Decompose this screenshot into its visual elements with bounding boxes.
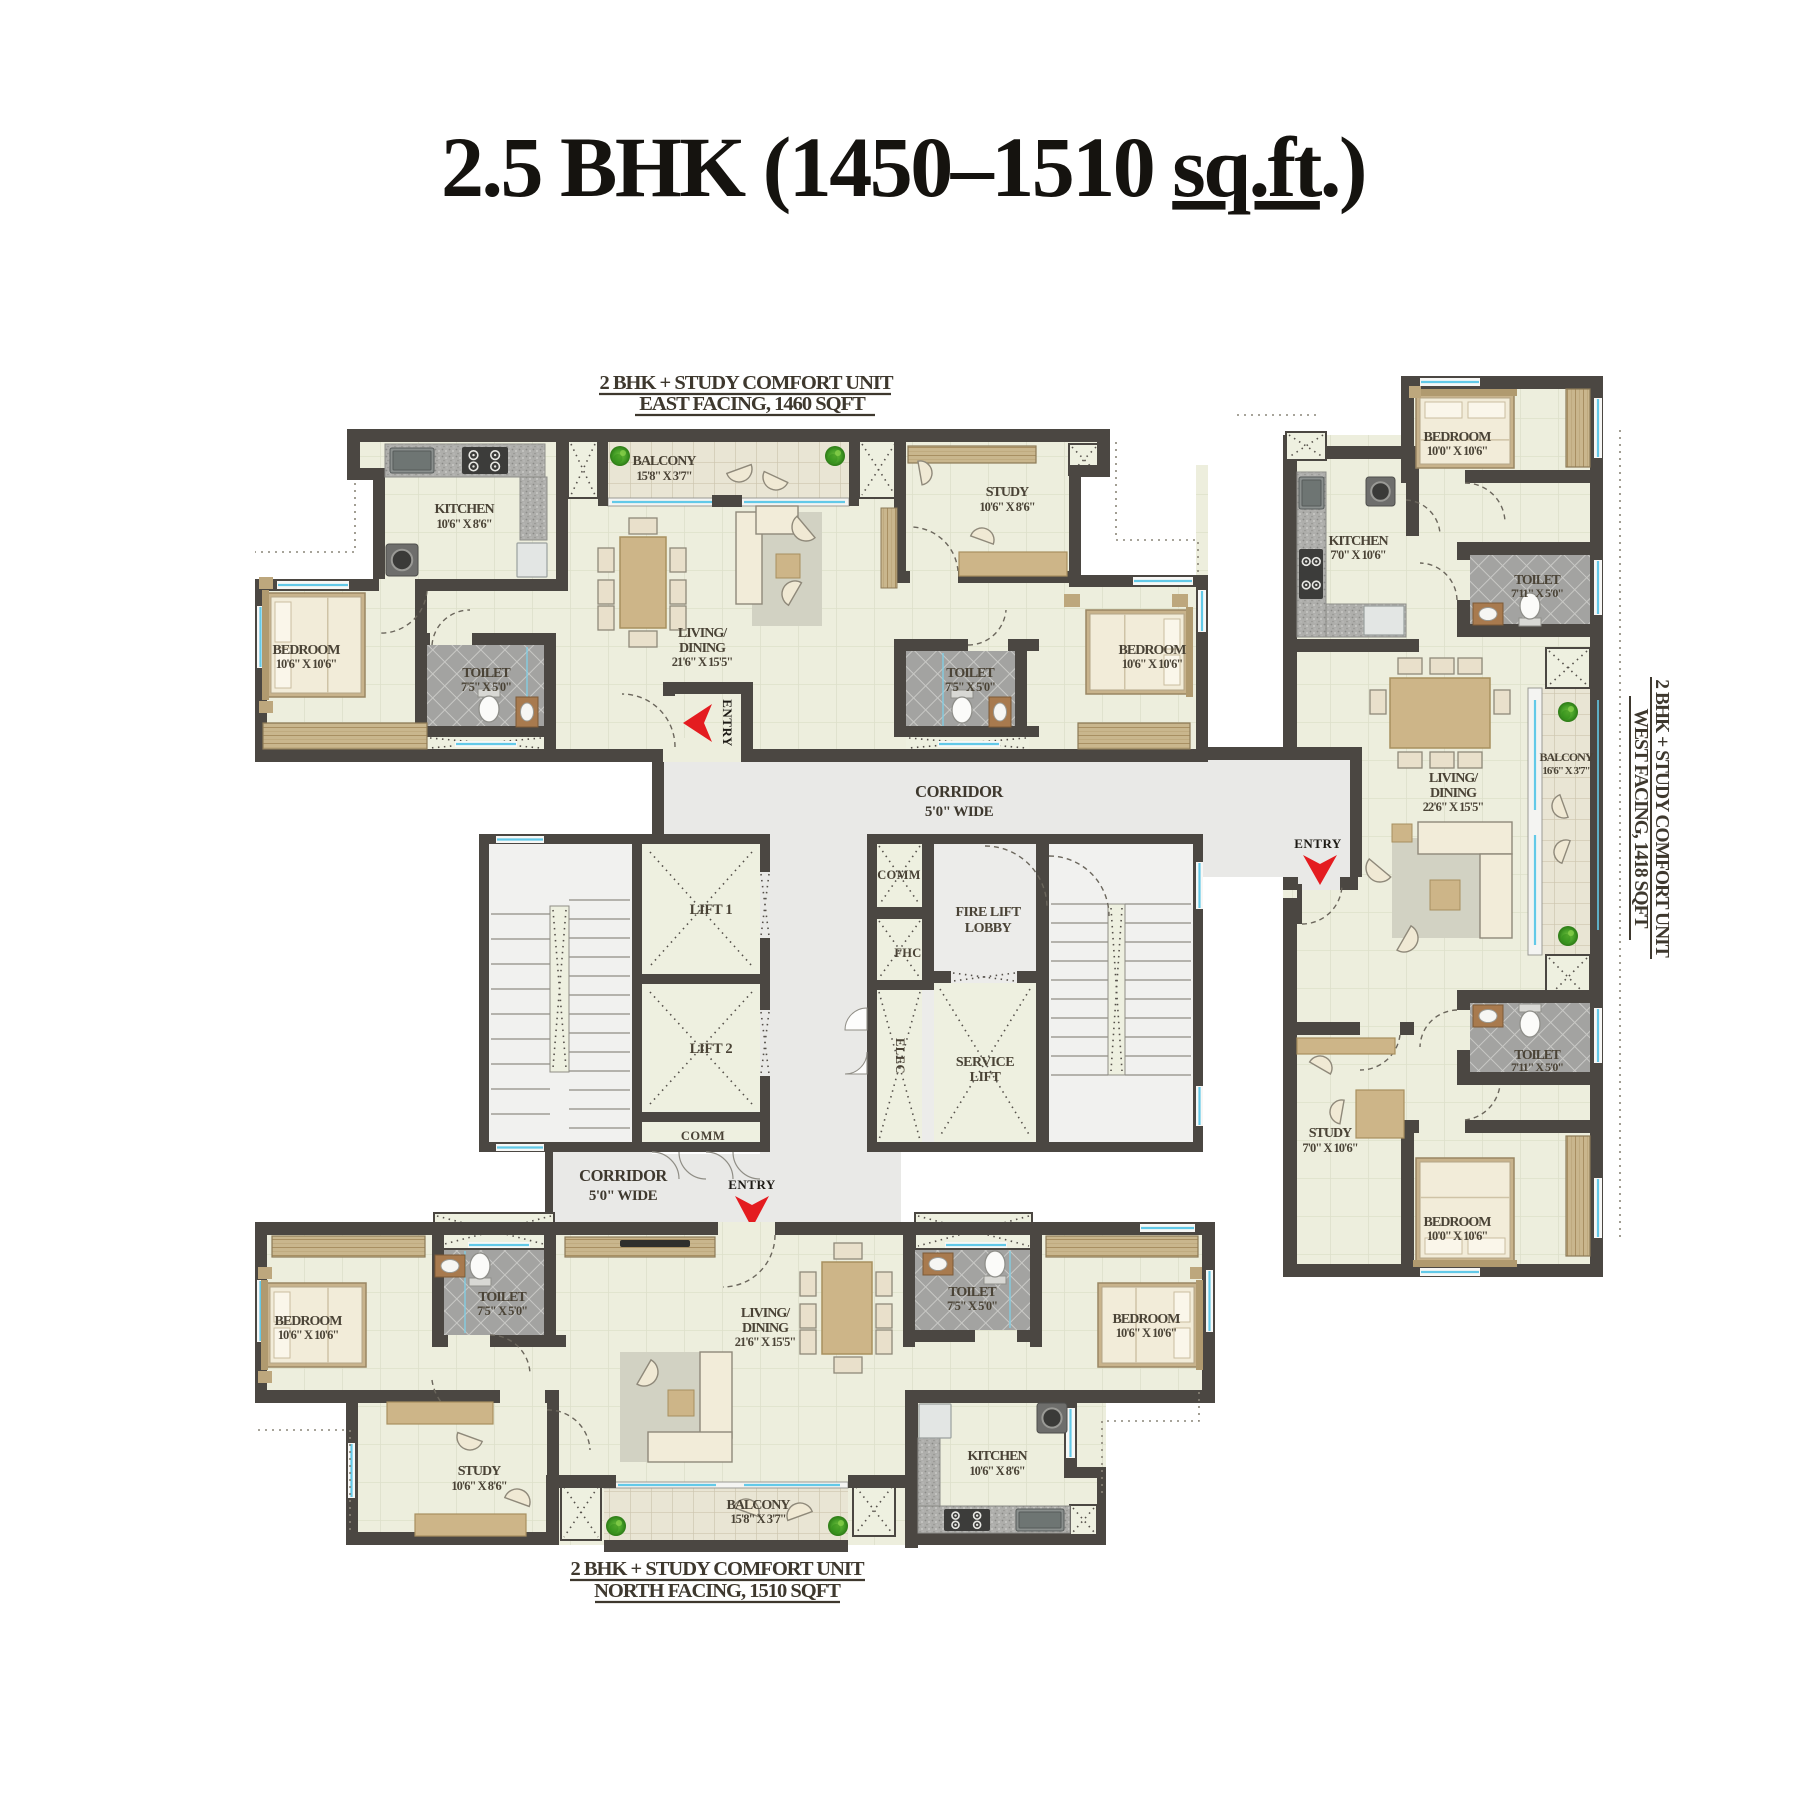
- svg-text:ENTRY: ENTRY: [1294, 836, 1342, 851]
- svg-text:10'6" X 8'6": 10'6" X 8'6": [969, 1464, 1024, 1478]
- svg-text:ENTRY: ENTRY: [720, 699, 735, 747]
- svg-text:2.5 BHK (1450–1510 sq.ft.): 2.5 BHK (1450–1510 sq.ft.): [441, 119, 1365, 215]
- svg-text:TOILET: TOILET: [462, 666, 511, 681]
- svg-text:BEDROOM: BEDROOM: [1119, 643, 1187, 658]
- svg-text:10'6" X 10'6": 10'6" X 10'6": [276, 657, 337, 671]
- svg-text:CORRIDOR: CORRIDOR: [915, 782, 1004, 801]
- svg-text:10'6" X 10'6": 10'6" X 10'6": [278, 1328, 339, 1342]
- svg-text:TOILET: TOILET: [1514, 572, 1561, 587]
- svg-text:STUDY: STUDY: [986, 485, 1029, 500]
- svg-text:10'6" X 8'6": 10'6" X 8'6": [451, 1479, 506, 1493]
- svg-text:STUDY: STUDY: [458, 1464, 501, 1479]
- svg-text:ENTRY: ENTRY: [728, 1177, 776, 1192]
- svg-text:TOILET: TOILET: [478, 1290, 527, 1305]
- svg-text:7'5" X 5'0": 7'5" X 5'0": [945, 680, 995, 694]
- svg-text:BEDROOM: BEDROOM: [1113, 1312, 1181, 1327]
- svg-text:10'6" X 10'6": 10'6" X 10'6": [1116, 1326, 1177, 1340]
- svg-text:DINING: DINING: [1430, 786, 1477, 801]
- svg-text:FHC: FHC: [894, 946, 921, 960]
- svg-text:7'0" X 10'6": 7'0" X 10'6": [1302, 1141, 1357, 1155]
- svg-text:10'6" X 8'6": 10'6" X 8'6": [979, 500, 1034, 514]
- svg-text:2 BHK + STUDY COMFORT UNIT: 2 BHK + STUDY COMFORT UNIT: [570, 1558, 864, 1580]
- svg-text:LIFT: LIFT: [970, 1070, 1002, 1085]
- svg-text:10'0" X 10'6": 10'0" X 10'6": [1427, 444, 1488, 458]
- svg-text:10'6" X 8'6": 10'6" X 8'6": [436, 517, 491, 531]
- svg-text:KITCHEN: KITCHEN: [967, 1449, 1027, 1464]
- svg-text:BALCONY: BALCONY: [632, 454, 696, 469]
- svg-text:LIFT 1: LIFT 1: [690, 902, 733, 918]
- svg-text:CORRIDOR: CORRIDOR: [579, 1166, 668, 1185]
- svg-text:ELEC: ELEC: [893, 1038, 907, 1074]
- svg-text:15'8" X 3'7": 15'8" X 3'7": [730, 1512, 785, 1526]
- svg-text:LIVING/: LIVING/: [1429, 771, 1479, 786]
- svg-text:7'0" X 10'6": 7'0" X 10'6": [1330, 548, 1385, 562]
- svg-text:5'0" WIDE: 5'0" WIDE: [589, 1188, 658, 1204]
- svg-text:LOBBY: LOBBY: [965, 921, 1012, 936]
- svg-text:BALCONY: BALCONY: [1539, 750, 1593, 764]
- svg-text:KITCHEN: KITCHEN: [1328, 534, 1388, 549]
- svg-text:LIVING/: LIVING/: [741, 1306, 791, 1321]
- svg-text:2 BHK + STUDY COMFORT UNIT: 2 BHK + STUDY COMFORT UNIT: [599, 372, 893, 394]
- svg-text:10'6" X 10'6": 10'6" X 10'6": [1122, 657, 1183, 671]
- svg-text:KITCHEN: KITCHEN: [434, 502, 494, 517]
- svg-text:BEDROOM: BEDROOM: [273, 643, 341, 658]
- svg-text:NORTH FACING, 1510 SQFT: NORTH FACING, 1510 SQFT: [594, 1580, 841, 1602]
- svg-text:21'6" X 15'5": 21'6" X 15'5": [672, 655, 733, 669]
- svg-text:FIRE LIFT: FIRE LIFT: [955, 905, 1021, 920]
- svg-text:7'5" X 5'0": 7'5" X 5'0": [477, 1304, 527, 1318]
- svg-text:LIFT 2: LIFT 2: [690, 1041, 733, 1057]
- svg-text:SERVICE: SERVICE: [956, 1055, 1014, 1070]
- svg-text:5'0" WIDE: 5'0" WIDE: [925, 804, 994, 820]
- svg-text:BALCONY: BALCONY: [726, 1498, 790, 1513]
- svg-text:2 BHK + STUDY COMFORT UNIT: 2 BHK + STUDY COMFORT UNIT: [1651, 679, 1672, 957]
- svg-text:10'0" X 10'6": 10'0" X 10'6": [1427, 1229, 1488, 1243]
- svg-text:7'11" X 5'0": 7'11" X 5'0": [1511, 586, 1563, 600]
- svg-text:TOILET: TOILET: [948, 1285, 997, 1300]
- svg-text:EAST FACING, 1460 SQFT: EAST FACING, 1460 SQFT: [639, 393, 866, 415]
- svg-text:BEDROOM: BEDROOM: [1424, 1215, 1492, 1230]
- svg-text:BEDROOM: BEDROOM: [275, 1314, 343, 1329]
- svg-text:COMM: COMM: [877, 868, 921, 882]
- svg-text:DINING: DINING: [742, 1321, 789, 1336]
- svg-text:TOILET: TOILET: [946, 666, 995, 681]
- svg-text:WEST FACING, 1418 SQFT: WEST FACING, 1418 SQFT: [1630, 709, 1651, 929]
- svg-text:COMM: COMM: [681, 1129, 725, 1143]
- svg-text:16'6" X 3'7": 16'6" X 3'7": [1542, 765, 1589, 777]
- svg-text:STUDY: STUDY: [1309, 1126, 1352, 1141]
- svg-text:15'8" X 3'7": 15'8" X 3'7": [636, 469, 691, 483]
- svg-text:LIVING/: LIVING/: [678, 626, 728, 641]
- svg-text:7'5" X 5'0": 7'5" X 5'0": [461, 680, 511, 694]
- svg-text:BEDROOM: BEDROOM: [1424, 430, 1492, 445]
- svg-text:22'6" X 15'5": 22'6" X 15'5": [1423, 800, 1484, 814]
- svg-text:7'11" X 5'0": 7'11" X 5'0": [1511, 1060, 1563, 1074]
- svg-text:DINING: DINING: [679, 641, 726, 656]
- svg-text:7'5" X 5'0": 7'5" X 5'0": [947, 1299, 997, 1313]
- svg-text:21'6" X 15'5": 21'6" X 15'5": [735, 1335, 796, 1349]
